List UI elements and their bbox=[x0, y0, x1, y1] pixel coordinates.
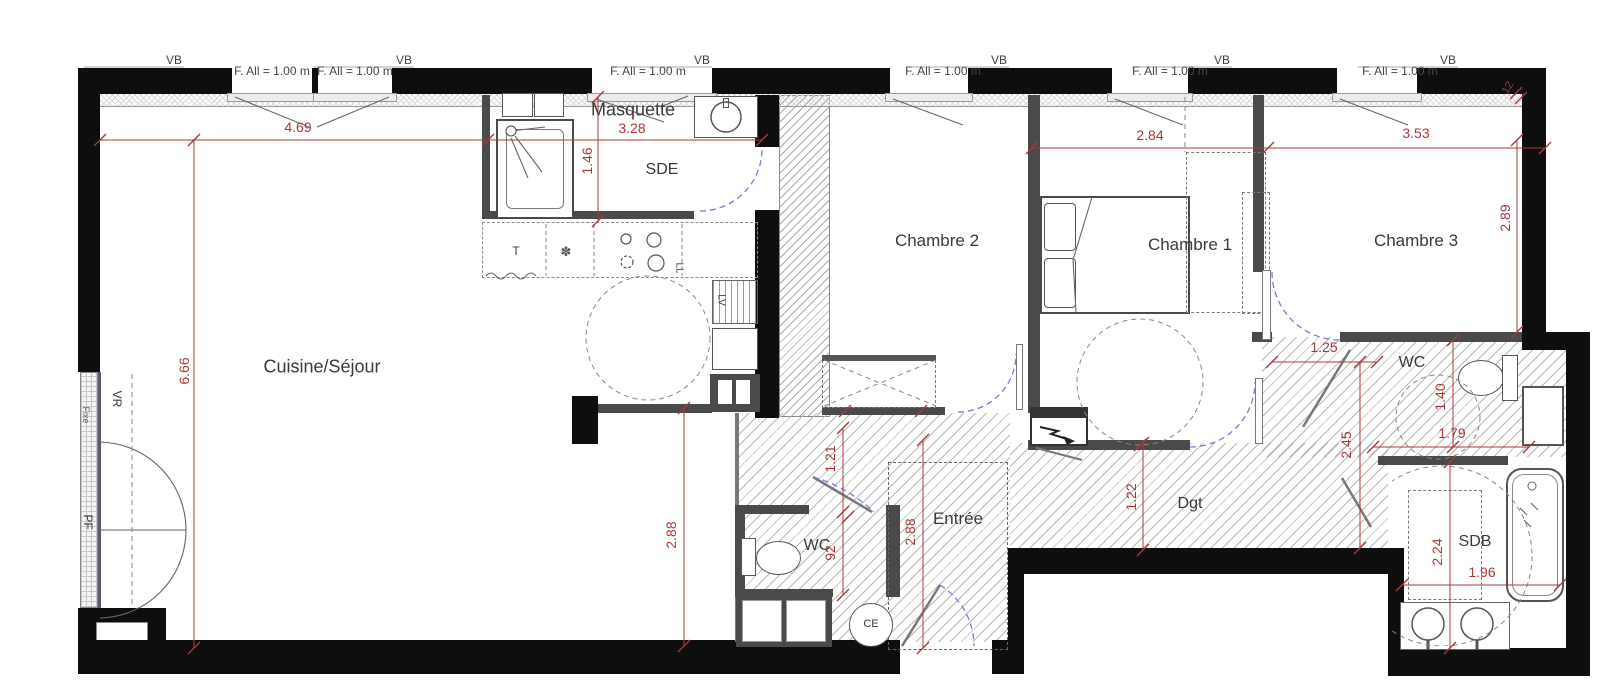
dim-entree-height: 2.88 bbox=[902, 518, 918, 545]
cooktop-burners bbox=[621, 233, 664, 271]
window-label-6: F. All = 1.00 m bbox=[1362, 64, 1438, 78]
dim-sejour-width: 4.69 bbox=[284, 119, 311, 135]
dim-ch3-height: 2.89 bbox=[1497, 204, 1513, 231]
room-label-cuisine-sejour: Cuisine/Séjour bbox=[263, 357, 380, 378]
room-label-chambre2: Chambre 2 bbox=[895, 231, 979, 251]
vr-label: VR bbox=[110, 391, 124, 408]
dim-wc2-width: 1.79 bbox=[1438, 425, 1465, 441]
turning-circle-ch1 bbox=[1077, 319, 1203, 445]
door-arc-sde bbox=[700, 149, 762, 211]
sde-basin-icon bbox=[711, 102, 741, 132]
window-label-2: F. All = 1.00 m bbox=[317, 64, 393, 78]
dim-sde-width: 3.28 bbox=[618, 120, 645, 136]
lightning-icon bbox=[1040, 427, 1075, 445]
vb-label-4: VB bbox=[991, 53, 1007, 67]
dim-sejour-height: 6.66 bbox=[176, 357, 192, 384]
wardrobe-cross bbox=[824, 360, 936, 406]
door-swing-arcs bbox=[700, 149, 1340, 646]
door-arc-ch1 bbox=[1190, 382, 1255, 447]
flower-icon: ✽ bbox=[561, 244, 572, 260]
vb-label-2: VB bbox=[396, 53, 412, 67]
window-label-5: F. All = 1.00 m bbox=[1132, 64, 1208, 78]
dim-dgt-width: 1.22 bbox=[1123, 483, 1139, 510]
dim-ch1-width: 2.84 bbox=[1136, 127, 1163, 143]
window-label-3: F. All = 1.00 m bbox=[610, 64, 686, 78]
door-leaves-diagonal bbox=[813, 350, 1371, 646]
vb-label-3: VB bbox=[694, 53, 710, 67]
shower-head-icon bbox=[506, 126, 516, 136]
dim-sdb-width: 1.96 bbox=[1468, 564, 1495, 580]
dim-wc1-door: 1.21 bbox=[822, 445, 838, 472]
room-label-entree: Entrée bbox=[933, 509, 983, 529]
vb-label-1: VB bbox=[166, 53, 182, 67]
dim-sdb-depth: 2.24 bbox=[1429, 538, 1445, 565]
window-label-1: F. All = 1.00 m bbox=[234, 64, 310, 78]
dishwasher-label: LV bbox=[716, 294, 727, 306]
plan-linework bbox=[0, 0, 1600, 687]
room-label-chambre3: Chambre 3 bbox=[1374, 231, 1458, 251]
dim-wc2-depth: 1.40 bbox=[1432, 383, 1448, 410]
dim-ch3-width: 3.53 bbox=[1402, 125, 1429, 141]
tub-drain-icon bbox=[1528, 482, 1536, 490]
door-arc-ch2 bbox=[958, 354, 1016, 412]
pf-label: PF bbox=[81, 514, 95, 529]
dim-wc1-width: 92 bbox=[822, 545, 838, 561]
vb-label-5: VB bbox=[1214, 53, 1230, 67]
door-arc-ch3 bbox=[1272, 272, 1340, 340]
fixe-label: Fixe bbox=[81, 406, 91, 423]
masquette-label: Masquette bbox=[591, 100, 675, 121]
room-label-chambre1: Chambre 1 bbox=[1148, 235, 1232, 255]
washer-label: LL bbox=[674, 262, 685, 273]
room-label-sde: SDE bbox=[646, 161, 679, 179]
turning-circle-kitchen bbox=[586, 276, 710, 400]
table-label: T bbox=[512, 244, 519, 258]
vb-label-6: VB bbox=[1440, 53, 1456, 67]
room-label-dgt: Dgt bbox=[1178, 495, 1203, 513]
dim-sde-depth: 1.46 bbox=[579, 147, 595, 174]
sdb-basins bbox=[1412, 608, 1493, 650]
floor-plan: Cuisine/Séjour SDE Chambre 2 Chambre 1 C… bbox=[0, 0, 1600, 687]
window-label-4: F. All = 1.00 m bbox=[905, 64, 981, 78]
room-label-sdb: SDB bbox=[1459, 533, 1492, 551]
dim-sejour-south: 2.88 bbox=[663, 521, 679, 548]
dim-ch3-passage: 1.25 bbox=[1310, 339, 1337, 355]
dim-corridor-depth: 2.45 bbox=[1338, 431, 1354, 458]
door-arc-entrance bbox=[940, 585, 974, 646]
room-label-wc-right: WC bbox=[1399, 354, 1426, 372]
water-heater-label: CE bbox=[863, 618, 878, 630]
